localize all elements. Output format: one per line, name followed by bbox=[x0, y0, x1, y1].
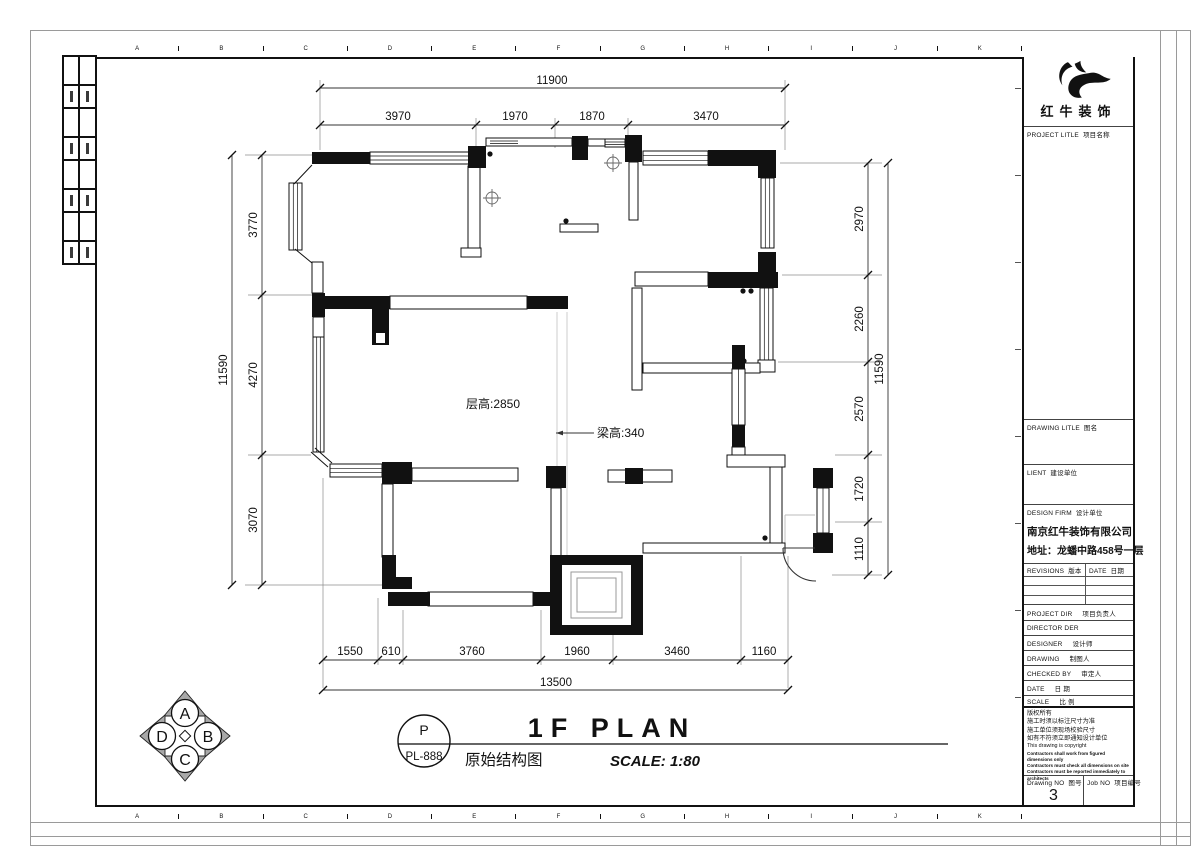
grid-letter-cell: F bbox=[516, 42, 600, 55]
tb-project-title: PROJECT LITLE项目名称 bbox=[1024, 127, 1133, 420]
tb-director: DIRECTOR DER bbox=[1024, 621, 1133, 636]
design-firm-address: 地址：龙蟠中路458号一层 bbox=[1027, 542, 1130, 557]
grid-letter-cell: D bbox=[348, 42, 432, 55]
grid-letter-cell: A bbox=[95, 810, 179, 823]
tb-copyright-notes: 版权所有施工时须以标注尺寸为准施工单位须现场校验尺寸如有不符须立即通知设计单位T… bbox=[1024, 708, 1133, 776]
drawing-number-value: 3 bbox=[1027, 787, 1080, 805]
design-firm-name: 南京红牛装饰有限公司 bbox=[1027, 524, 1130, 539]
tb-scale: SCALE比 例 bbox=[1024, 696, 1133, 708]
grid-letter-cell: J bbox=[853, 42, 937, 55]
tb-drawing-number: Drawing NO图号 3 Job NO项目编号 bbox=[1024, 776, 1133, 805]
grid-ruler-bottom: ABCDEFGHIJK bbox=[95, 810, 1022, 823]
grid-letter-cell: K bbox=[938, 810, 1022, 823]
tb-project-dir: PROJECT DIR项目负责人 bbox=[1024, 605, 1133, 621]
grid-letter-cell: E bbox=[432, 42, 516, 55]
grid-letter-cell: G bbox=[601, 42, 685, 55]
tb-drawing-by: DRAWING制图人 bbox=[1024, 651, 1133, 666]
tb-designer: DESIGNER设计师 bbox=[1024, 636, 1133, 651]
grid-letter-cell: K bbox=[938, 42, 1022, 55]
grid-letter-cell: I bbox=[769, 810, 853, 823]
trim-line bbox=[1160, 30, 1161, 845]
company-name: 红牛装饰 bbox=[1040, 101, 1116, 120]
grid-letter-cell: B bbox=[179, 42, 263, 55]
grid-letter-cell: A bbox=[95, 42, 179, 55]
tb-revisions-table: REVISIONS版本 DATE日期 bbox=[1024, 564, 1133, 605]
drawing-sheet: ABCDEFGHIJK ABCDEFGHIJK 红牛装饰 PROJECT LIT… bbox=[0, 0, 1200, 860]
grid-letter-cell: B bbox=[179, 810, 263, 823]
grid-letter-cell: C bbox=[264, 42, 348, 55]
bull-logo-icon bbox=[1043, 59, 1115, 103]
trim-line bbox=[30, 836, 1190, 837]
grid-letter-cell: E bbox=[432, 810, 516, 823]
drawing-frame bbox=[95, 57, 1135, 807]
company-logo: 红牛装饰 bbox=[1024, 57, 1133, 127]
grid-letter-cell: H bbox=[685, 810, 769, 823]
tb-drawing-title: DRAWING LITLE图名 bbox=[1024, 420, 1133, 465]
trim-line bbox=[1176, 30, 1177, 845]
grid-letter-cell: I bbox=[769, 42, 853, 55]
title-block: 红牛装饰 PROJECT LITLE项目名称 DRAWING LITLE图名 L… bbox=[1022, 57, 1133, 805]
sheet-side-table bbox=[62, 55, 97, 265]
grid-letter-cell: G bbox=[601, 810, 685, 823]
tb-checked-by: CHECKED BY审定人 bbox=[1024, 666, 1133, 681]
tb-client: LIENT建设单位 bbox=[1024, 465, 1133, 505]
grid-letter-cell: J bbox=[853, 810, 937, 823]
grid-letter-cell: C bbox=[264, 810, 348, 823]
grid-letter-cell: H bbox=[685, 42, 769, 55]
tb-date: DATE日 期 bbox=[1024, 681, 1133, 696]
grid-letter-cell: D bbox=[348, 810, 432, 823]
grid-ruler-top: ABCDEFGHIJK bbox=[95, 42, 1022, 55]
grid-letter-cell: F bbox=[516, 810, 600, 823]
tb-design-firm: DESIGN FIRM设计单位 南京红牛装饰有限公司 地址：龙蟠中路458号一层 bbox=[1024, 505, 1133, 564]
